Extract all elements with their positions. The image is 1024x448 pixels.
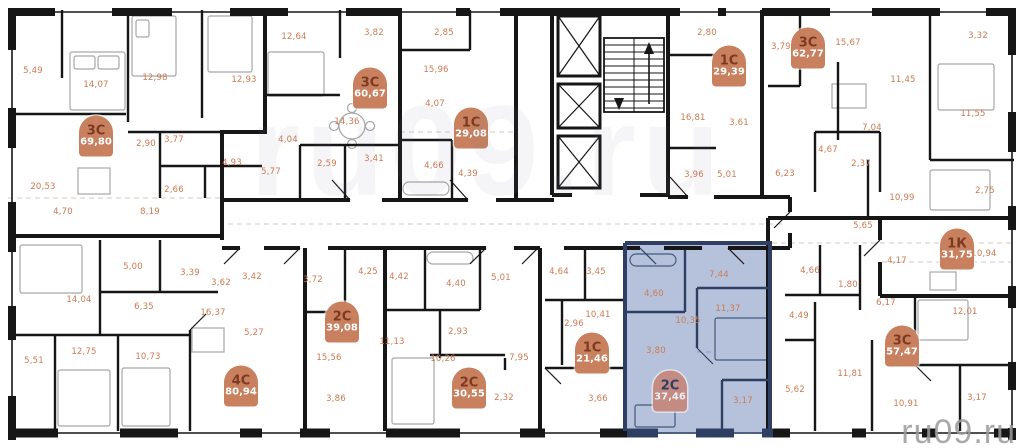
- apartment-badge-4c-80-94[interactable]: 4С80,94: [224, 366, 258, 407]
- apartment-type-label: 2С: [460, 376, 479, 389]
- apartment-type-label: 2С: [333, 310, 352, 323]
- apartment-area-label: 21,46: [576, 355, 608, 365]
- apartment-badge-2c-30-55[interactable]: 2С30,55: [452, 368, 486, 409]
- apartment-area-label: 57,47: [886, 348, 918, 358]
- apartment-badge-1c-29-08[interactable]: 1С29,08: [454, 108, 488, 149]
- watermark: ru09.ru: [901, 413, 1016, 448]
- apartment-badge-2c-37-46[interactable]: 2С37,46: [653, 371, 687, 412]
- apartment-area-label: 62,77: [792, 50, 824, 60]
- apartment-type-label: 3С: [361, 76, 380, 89]
- apartment-type-label: 1С: [720, 54, 739, 67]
- apartment-area-label: 69,80: [80, 138, 112, 148]
- floor-plan: 5,4914,0712,9812,932,903,774,932,6620,53…: [0, 0, 1024, 448]
- apartment-badge-1c-21-46[interactable]: 1С21,46: [575, 333, 609, 374]
- apartment-badge-3c-69-80[interactable]: 3С69,80: [79, 116, 113, 157]
- apartment-type-label: 1С: [462, 116, 481, 129]
- apartment-badge-3c-60-67[interactable]: 3С60,67: [353, 68, 387, 109]
- apartment-area-label: 29,08: [455, 130, 487, 140]
- apartment-badges-layer: 3С69,803С60,671С29,081С29,393С62,771К31,…: [0, 0, 1024, 448]
- apartment-badge-3c-57-47[interactable]: 3С57,47: [885, 326, 919, 367]
- apartment-badge-1k-31-75[interactable]: 1К31,75: [940, 229, 974, 270]
- apartment-area-label: 39,08: [326, 324, 358, 334]
- apartment-type-label: 4С: [232, 374, 251, 387]
- apartment-area-label: 30,55: [453, 390, 485, 400]
- apartment-type-label: 2С: [661, 379, 680, 392]
- apartment-type-label: 1С: [583, 341, 602, 354]
- apartment-type-label: 3С: [799, 36, 818, 49]
- apartment-badge-3c-62-77[interactable]: 3С62,77: [791, 28, 825, 69]
- apartment-type-label: 3С: [893, 334, 912, 347]
- apartment-type-label: 3С: [87, 124, 106, 137]
- apartment-area-label: 29,39: [713, 68, 745, 78]
- apartment-area-label: 31,75: [941, 251, 973, 261]
- apartment-type-label: 1К: [947, 237, 967, 250]
- apartment-area-label: 80,94: [225, 388, 257, 398]
- apartment-badge-1c-29-39[interactable]: 1С29,39: [712, 46, 746, 87]
- apartment-area-label: 60,67: [354, 90, 386, 100]
- apartment-badge-2c-39-08[interactable]: 2С39,08: [325, 302, 359, 343]
- apartment-area-label: 37,46: [654, 393, 686, 403]
